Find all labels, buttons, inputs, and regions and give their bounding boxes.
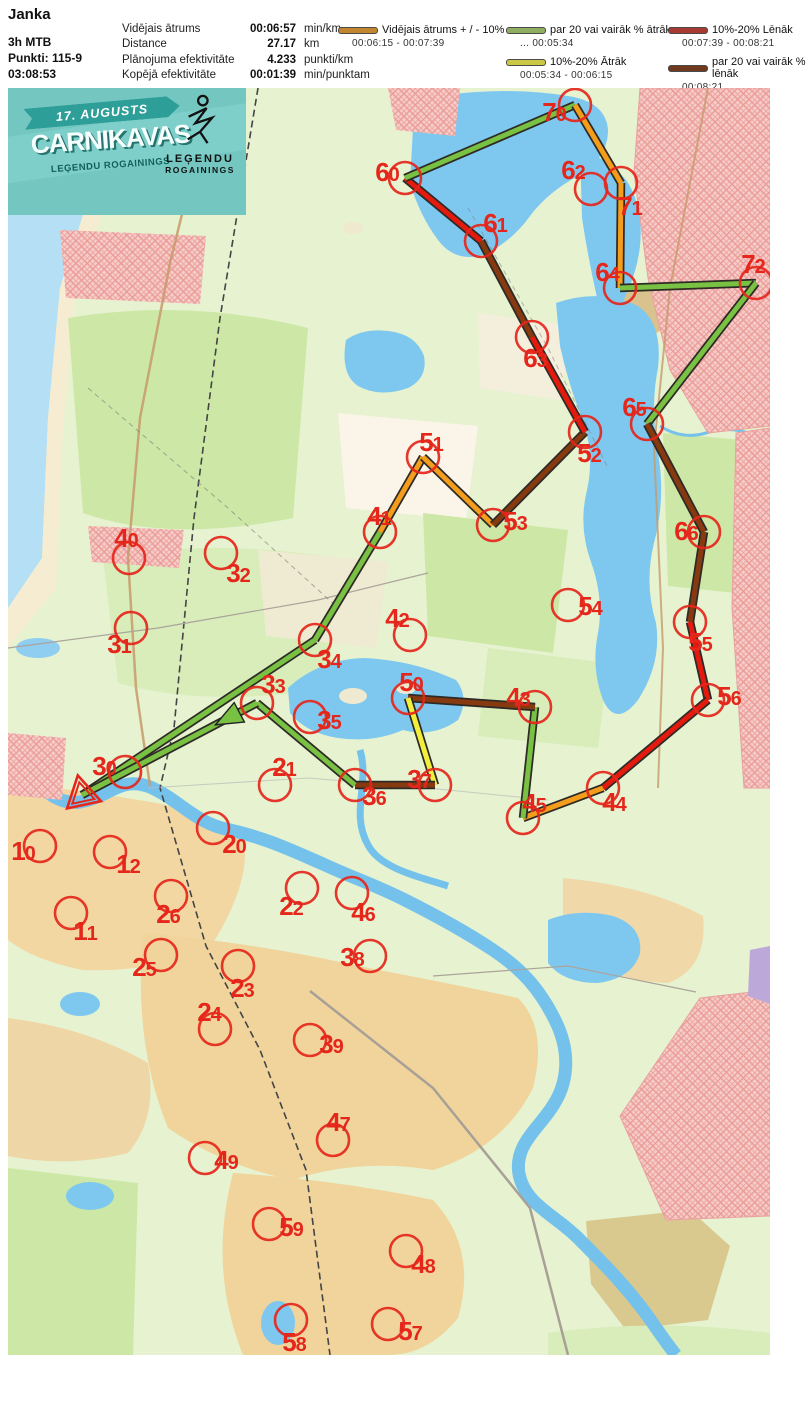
legend-label: 10%-20% Lēnāk <box>712 24 793 36</box>
legend-range: 00:05:34 - 00:06:15 <box>520 70 671 81</box>
organizer-logo: LEĢENDU ROGAININGS <box>156 94 244 175</box>
legend-label: par 20 vai vairāk % ātrāk <box>550 24 671 36</box>
runner-info: 3h MTB Punkti: 115-9 03:08:53 <box>8 34 82 82</box>
route-map: 1011122021222324252630313233343536373839… <box>8 88 770 1355</box>
legend-range: ... 00:05:34 <box>520 38 671 49</box>
legend-line-swatch <box>506 59 546 66</box>
legend-line-swatch <box>338 27 378 34</box>
page-title: Janka <box>8 6 51 23</box>
stat-row: Plānojuma efektivitāte4.233punkti/km <box>122 52 370 68</box>
map-terrain <box>8 88 770 1355</box>
legend-range: 00:06:15 - 00:07:39 <box>352 38 504 49</box>
stat-unit: min/km <box>304 23 341 35</box>
report-page: Janka 3h MTB Punkti: 115-9 03:08:53 Vidē… <box>0 0 808 1414</box>
legend-line-swatch <box>668 65 708 72</box>
legend-label: par 20 vai vairāk % lēnāk <box>712 56 808 80</box>
legend-range: 00:07:39 - 00:08:21 <box>682 38 808 49</box>
stat-label: Distance <box>122 38 244 50</box>
stats-table: Vidējais ātrums00:06:57min/kmDistance27.… <box>122 21 370 83</box>
legend-column-1: Vidējais ātrums + / - 10%00:06:15 - 00:0… <box>338 24 504 56</box>
legend-item: 10%-20% Ātrāk00:05:34 - 00:06:15 <box>506 56 671 81</box>
logo-line1: LEĢENDU <box>156 153 244 165</box>
legend-item: Vidējais ātrums + / - 10%00:06:15 - 00:0… <box>338 24 504 49</box>
stat-row: Vidējais ātrums00:06:57min/km <box>122 21 370 37</box>
legend-line-swatch <box>668 27 708 34</box>
legend-column-2: par 20 vai vairāk % ātrāk... 00:05:3410%… <box>506 24 671 88</box>
logo-line2: ROGAININGS <box>156 165 244 175</box>
legend-label: Vidējais ātrums + / - 10% <box>382 24 504 36</box>
stat-label: Kopējā efektivitāte <box>122 69 244 81</box>
stat-row: Kopējā efektivitāte00:01:39min/punktam <box>122 68 370 84</box>
stat-value: 27.17 <box>244 38 296 50</box>
stat-unit: min/punktam <box>304 69 370 81</box>
event-banner: 17. AUGUSTS CARNIKAVAS LEĢENDU ROGAINING… <box>8 88 246 215</box>
stat-row: Distance27.17km <box>122 37 370 53</box>
points-label: Punkti: 115-9 <box>8 50 82 66</box>
legend-line-swatch <box>506 27 546 34</box>
class-label: 3h MTB <box>8 34 82 50</box>
runner-icon <box>180 94 220 146</box>
stat-unit: km <box>304 38 319 50</box>
stat-label: Vidējais ātrums <box>122 23 244 35</box>
map-canvas: 1011122021222324252630313233343536373839… <box>8 88 770 1355</box>
legend-item: 10%-20% Lēnāk00:07:39 - 00:08:21 <box>668 24 808 49</box>
stat-value: 4.233 <box>244 54 296 66</box>
stat-label: Plānojuma efektivitāte <box>122 54 244 66</box>
stat-value: 00:01:39 <box>244 69 296 81</box>
stat-value: 00:06:57 <box>244 23 296 35</box>
legend-label: 10%-20% Ātrāk <box>550 56 626 68</box>
total-time-label: 03:08:53 <box>8 66 82 82</box>
legend-item: par 20 vai vairāk % ātrāk... 00:05:34 <box>506 24 671 49</box>
